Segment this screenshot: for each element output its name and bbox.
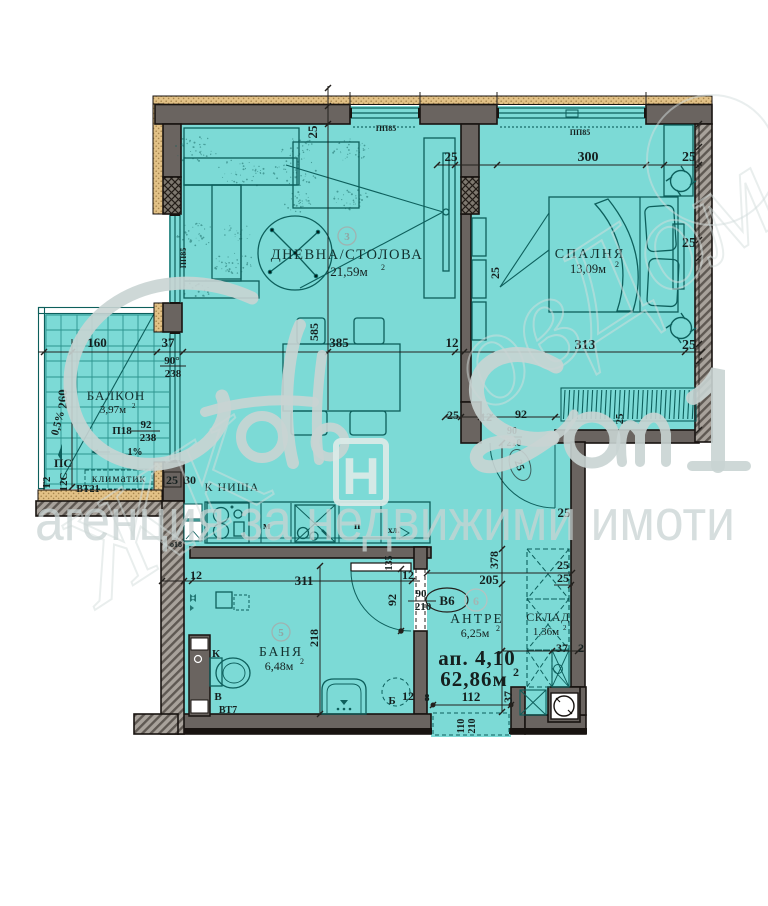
svg-text:311: 311 [295,573,314,588]
svg-text:37: 37 [556,641,568,655]
svg-text:300: 300 [578,150,599,165]
svg-text:12: 12 [402,568,414,582]
svg-text:12: 12 [402,689,414,703]
svg-text:6: 6 [473,594,479,608]
svg-text:ПП85: ПП85 [179,248,188,268]
svg-text:585: 585 [307,323,321,341]
svg-text:378: 378 [487,551,501,569]
svg-text:92: 92 [385,594,399,606]
svg-text:25: 25 [557,571,569,585]
svg-text:25: 25 [447,408,459,422]
svg-text:3: 3 [344,231,350,243]
svg-text:2: 2 [513,665,519,679]
svg-text:385: 385 [329,335,349,350]
svg-text:62,86м: 62,86м [440,667,508,691]
svg-text:25: 25 [305,125,320,139]
svg-text:В: В [214,691,222,703]
svg-text:2: 2 [300,657,304,666]
svg-text:В6: В6 [439,593,455,608]
svg-text:ВТ7: ВТ7 [219,705,237,716]
svg-text:25: 25 [682,338,696,353]
svg-text:92: 92 [141,419,153,431]
svg-text:2: 2 [381,263,385,272]
svg-text:205: 205 [479,572,499,587]
svg-text:2: 2 [132,402,136,410]
svg-text:160: 160 [87,335,107,350]
svg-text:СКЛАД: СКЛАД [526,610,570,624]
svg-text:112: 112 [462,689,481,704]
svg-text:H: H [342,448,380,506]
svg-text:2: 2 [563,624,567,632]
svg-text:БАЛКОН: БАЛКОН [87,388,146,403]
svg-text:210: 210 [467,719,478,734]
svg-text:37: 37 [162,335,176,350]
svg-text:ПС: ПС [54,456,72,470]
svg-text:ПП85: ПП85 [570,128,590,137]
svg-text:ПП85: ПП85 [376,124,396,133]
svg-text:37: 37 [501,691,515,703]
svg-text:6,25м: 6,25м [461,626,490,640]
svg-text:П18: П18 [112,425,132,437]
svg-text:6,48м: 6,48м [265,659,294,673]
svg-text:8: 8 [425,693,430,704]
svg-text:110: 110 [456,719,467,733]
svg-text:2: 2 [578,641,584,655]
svg-text:1,36м: 1,36м [533,626,559,638]
svg-text:2: 2 [496,624,500,633]
svg-text:БАНЯ: БАНЯ [259,644,303,659]
svg-text:21,59м: 21,59м [330,264,367,279]
svg-text:90: 90 [416,588,428,600]
svg-text:3,97м: 3,97м [100,404,126,416]
svg-text:Б: Б [388,695,395,707]
svg-text:90°: 90° [164,355,179,367]
svg-text:ДНЕВНА/СТОЛОВА: ДНЕВНА/СТОЛОВА [271,247,423,263]
svg-text:238: 238 [165,368,182,380]
svg-text:25: 25 [557,558,569,572]
svg-text:5: 5 [278,627,284,639]
svg-text:218: 218 [307,629,321,647]
svg-text:25: 25 [445,149,459,164]
svg-text:135: 135 [384,556,395,571]
svg-text:К: К [212,648,220,660]
